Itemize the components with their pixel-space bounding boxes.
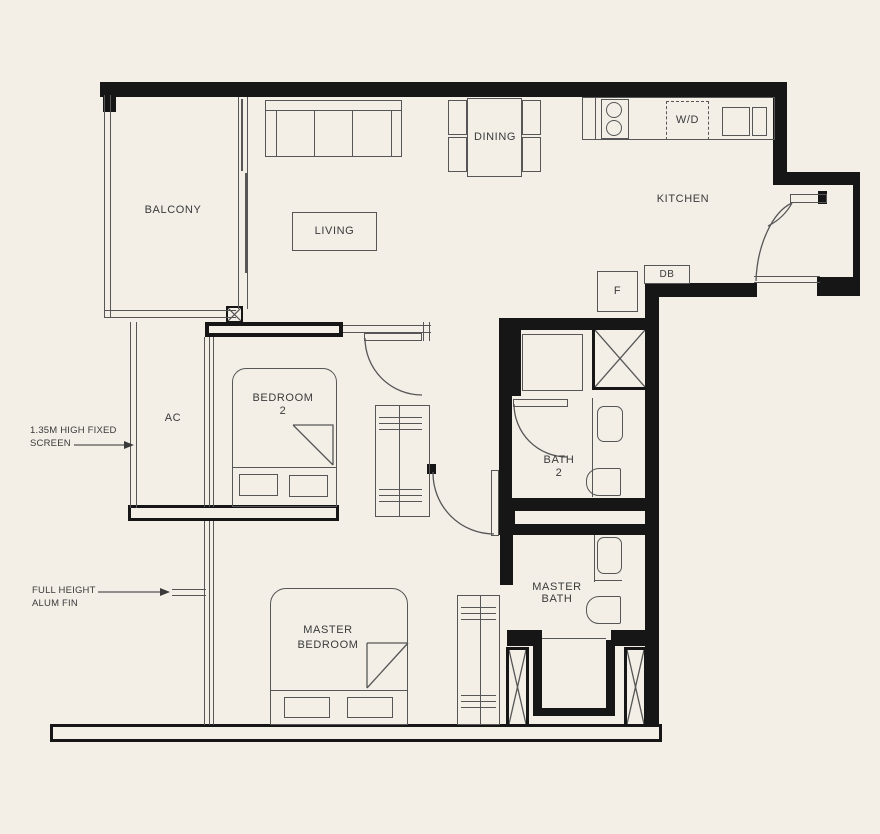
- wardrobe-rail: [461, 607, 496, 608]
- bedroom2-label: BEDROOM2: [233, 392, 333, 418]
- wardrobe-rail: [461, 701, 496, 702]
- wall-endcap: [423, 322, 430, 341]
- balcony-wall-bottom: [104, 310, 236, 318]
- balcony-wall-left: [104, 95, 111, 317]
- master-bath-label: MASTERBATH: [507, 581, 607, 605]
- master-wardrobe: [457, 595, 500, 725]
- wall-mshower-bottom: [533, 708, 615, 716]
- wardrobe-rail: [379, 423, 422, 424]
- wall-living-bedroom2: [205, 322, 343, 337]
- sofa-cushion-line-2: [352, 110, 353, 157]
- sliding-panel-2: [245, 173, 247, 273]
- mbath-vanity-line: [594, 535, 595, 582]
- wardrobe-rail: [379, 489, 422, 490]
- bedroom2-pillow: [239, 474, 278, 496]
- washer-dryer-box: W/D: [666, 101, 709, 140]
- fridge-box: F: [597, 271, 638, 312]
- db-box: DB: [644, 265, 690, 284]
- bulkhead-bedroom2-door: [343, 325, 431, 333]
- wall-entry-right: [853, 183, 860, 282]
- wall-top: [100, 82, 787, 97]
- wardrobe-rail: [379, 495, 422, 496]
- floor-plan: LIVING W/D F DB: [0, 0, 880, 834]
- fixed-screen-annotation: 1.35M HIGH FIXEDSCREEN: [30, 425, 140, 450]
- service-shaft-lower-right: [624, 647, 647, 727]
- master-pillow: [347, 697, 393, 718]
- wardrobe-rail: [379, 417, 422, 418]
- wall-bath2-west: [499, 318, 512, 511]
- kitchen-counter-divider: [595, 97, 596, 140]
- entry-threshold: [754, 276, 820, 283]
- alum-fin-annotation: FULL HEIGHTALUM FIN: [32, 585, 122, 610]
- door-leaf-corridor: [491, 470, 499, 536]
- wardrobe-rail: [379, 429, 422, 430]
- service-shaft-upper: [592, 327, 648, 390]
- bath2-label: BATH2: [519, 454, 599, 480]
- bath2-shower: [522, 334, 583, 391]
- bath2-door-arc: [514, 404, 567, 457]
- wardrobe-rail: [461, 695, 496, 696]
- wall-entry-bottom-left: [645, 283, 757, 297]
- sofa-back-line: [265, 110, 402, 111]
- wall-bottom: [50, 724, 662, 742]
- bath2-sink: [597, 406, 623, 442]
- dining-label: DINING: [465, 131, 525, 144]
- sofa-arm-left: [276, 110, 277, 157]
- wall-entry-top: [773, 172, 860, 185]
- living-label-box: LIVING: [292, 212, 377, 251]
- master-pillow: [284, 697, 330, 718]
- wall-shower2-left: [512, 330, 521, 396]
- alum-fin-arrow-head: [160, 588, 170, 596]
- service-shaft-lower-left: [506, 647, 529, 727]
- wall-right-upper: [773, 97, 787, 182]
- kitchen-sink: [722, 107, 750, 136]
- wall-mbath-west: [500, 524, 513, 585]
- bedroom2-pillow: [289, 475, 328, 497]
- wardrobe-rail: [461, 707, 496, 708]
- sofa-cushion-line-1: [314, 110, 315, 157]
- wardrobe-rail: [379, 501, 422, 502]
- wall-mbath-south-right: [611, 630, 648, 646]
- wardrobe-rail: [461, 613, 496, 614]
- door-leaf-bath2: [513, 399, 568, 407]
- entry-door-swing-2: [768, 203, 792, 226]
- kitchen-sink-drainer: [752, 107, 767, 136]
- bedroom2-door-arc: [365, 338, 422, 395]
- fridge-label: F: [614, 285, 621, 298]
- bedroom2-bed-line: [232, 467, 337, 468]
- sliding-panel-1: [241, 99, 243, 171]
- corridor-door-arc: [433, 472, 494, 534]
- living-label: LIVING: [315, 225, 355, 238]
- wardrobe-rail: [461, 619, 496, 620]
- mshower-entry-line: [542, 638, 606, 639]
- sofa-arm-right: [391, 110, 392, 157]
- wall-mshower-right: [606, 640, 615, 716]
- wall-entry-bottom-right: [817, 277, 860, 296]
- stove-burner: [606, 102, 622, 118]
- dining-chair: [448, 100, 467, 135]
- kitchen-label: KITCHEN: [633, 193, 733, 206]
- door-leaf-entry: [790, 194, 827, 203]
- stove-burner: [606, 120, 622, 136]
- washer-dryer-label: W/D: [676, 114, 699, 127]
- wardrobe-divider: [480, 595, 481, 725]
- sofa: [265, 100, 402, 157]
- alum-fin-marker: [172, 589, 206, 596]
- master-bed-line: [270, 690, 408, 691]
- mbath-sink: [597, 537, 622, 574]
- wall-mbath-north: [507, 524, 648, 535]
- wall-bath2-south: [499, 498, 655, 511]
- window-master-bedroom: [204, 521, 214, 725]
- entry-door-swing: [756, 203, 792, 281]
- wall-mshower-left: [533, 640, 542, 716]
- dining-chair: [522, 100, 541, 135]
- window-bedroom2: [204, 337, 214, 507]
- master-bedroom-label: MASTERBEDROOM: [258, 623, 398, 653]
- ac-label: AC: [143, 412, 203, 425]
- db-label: DB: [659, 268, 674, 281]
- wall-bedroom2-south: [128, 505, 339, 521]
- door-leaf-bedroom2: [364, 333, 422, 341]
- balcony-label: BALCONY: [123, 204, 223, 217]
- ac-ledge-edge: [130, 322, 137, 508]
